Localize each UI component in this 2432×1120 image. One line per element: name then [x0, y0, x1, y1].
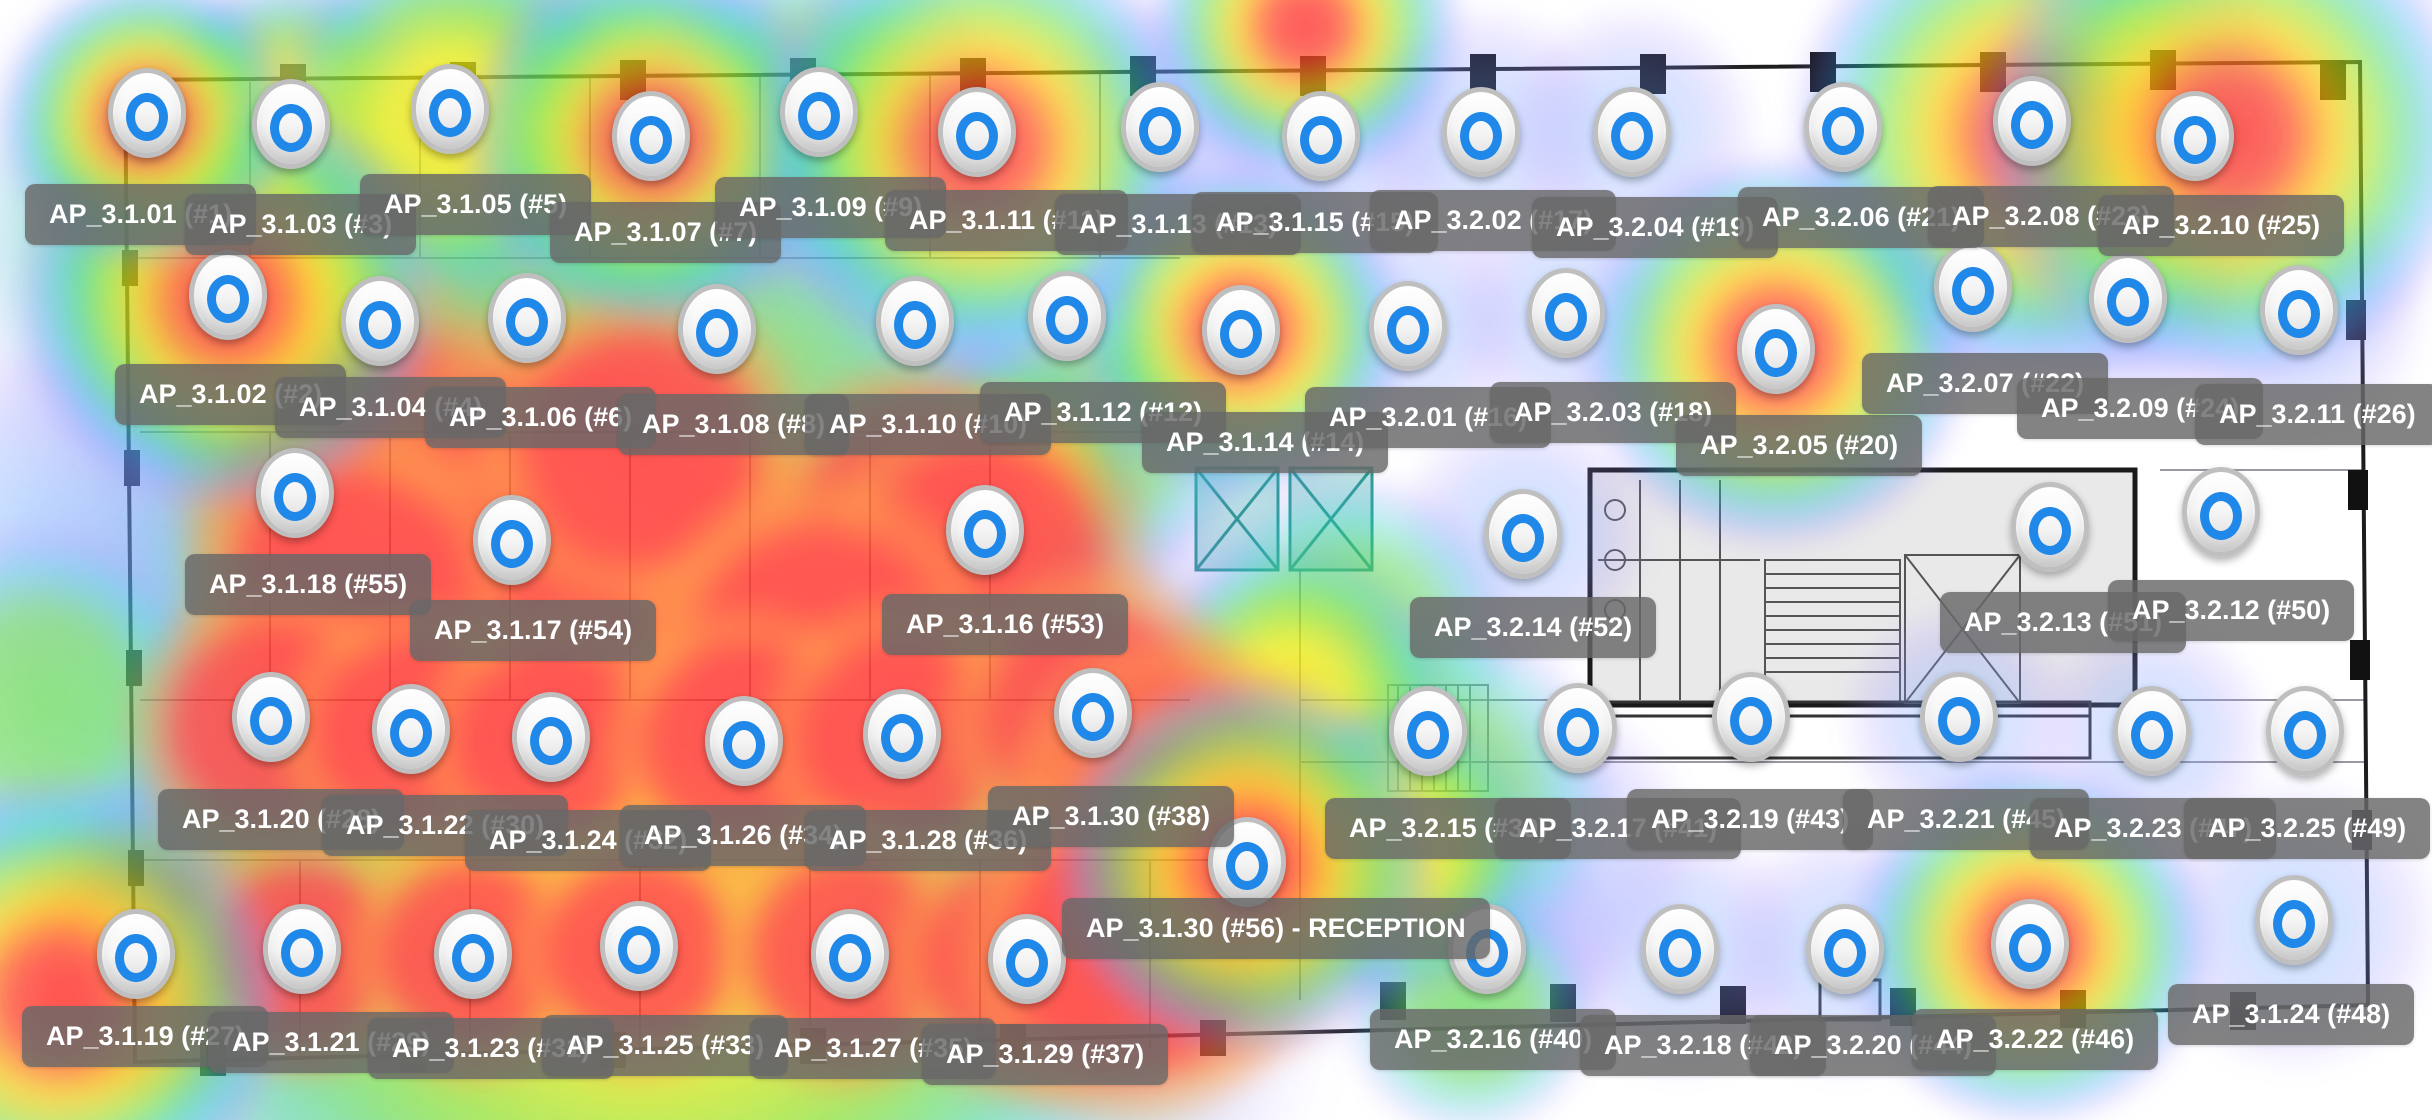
ap-ring-icon	[270, 104, 312, 152]
ap-ring-icon	[2273, 900, 2315, 948]
ap-ring-icon	[2131, 711, 2173, 759]
ap-ring-icon	[696, 309, 738, 357]
ap-icon[interactable]	[1442, 87, 1520, 177]
ap-label[interactable]: AP_3.1.30 (#56) - RECEPTION	[1062, 898, 1490, 959]
ap-ring-icon	[1300, 116, 1342, 164]
ap-ring-icon	[2278, 290, 2320, 338]
ap-icon[interactable]	[1121, 82, 1199, 172]
ap-icon[interactable]	[1389, 686, 1467, 776]
ap-ring-icon	[829, 934, 871, 982]
ap-icon[interactable]	[2260, 265, 2338, 355]
ap-icon[interactable]	[938, 87, 1016, 177]
ap-icon[interactable]	[2156, 91, 2234, 181]
ap-label[interactable]: AP_3.2.05 (#20)	[1676, 415, 1922, 476]
ap-icon[interactable]	[600, 901, 678, 991]
ap-ring-icon	[1938, 697, 1980, 745]
ap-icon[interactable]	[780, 67, 858, 157]
ap-ring-icon	[2009, 924, 2051, 972]
ap-icon[interactable]	[1202, 285, 1280, 375]
ap-label[interactable]: AP_3.1.17 (#54)	[410, 600, 656, 661]
ap-ring-icon	[359, 301, 401, 349]
ap-icon[interactable]	[863, 689, 941, 779]
ap-ring-icon	[1460, 112, 1502, 160]
ap-ring-icon	[1046, 296, 1088, 344]
ap-icon[interactable]	[1539, 683, 1617, 773]
ap-ring-icon	[207, 275, 249, 323]
ap-ring-icon	[630, 116, 672, 164]
ap-ring-icon	[618, 926, 660, 974]
ap-icon[interactable]	[1712, 672, 1790, 762]
ap-icon[interactable]	[488, 273, 566, 363]
ap-ring-icon	[1952, 267, 1994, 315]
ap-icon[interactable]	[2255, 875, 2333, 965]
ap-icon[interactable]	[2266, 686, 2344, 776]
ap-ring-icon	[1824, 929, 1866, 977]
ap-icon[interactable]	[612, 91, 690, 181]
ap-ring-icon	[798, 92, 840, 140]
ap-icon[interactable]	[946, 485, 1024, 575]
ap-icon[interactable]	[1991, 899, 2069, 989]
ap-ring-icon	[1226, 842, 1268, 890]
ap-icon[interactable]	[1282, 91, 1360, 181]
ap-icon[interactable]	[263, 904, 341, 994]
ap-icon[interactable]	[411, 64, 489, 154]
ap-ring-icon	[1387, 306, 1429, 354]
ap-ring-icon	[894, 301, 936, 349]
ap-icon[interactable]	[108, 68, 186, 158]
ap-icon[interactable]	[1737, 304, 1815, 394]
ap-ring-icon	[1755, 329, 1797, 377]
ap-ring-icon	[2284, 711, 2326, 759]
ap-icon[interactable]	[2089, 253, 2167, 343]
ap-label[interactable]: AP_3.2.22 (#46)	[1912, 1009, 2158, 1070]
ap-label[interactable]: AP_3.2.14 (#52)	[1410, 597, 1656, 658]
ap-ring-icon	[530, 717, 572, 765]
ap-ring-icon	[491, 520, 533, 568]
ap-icon[interactable]	[811, 909, 889, 999]
ap-ring-icon	[1545, 293, 1587, 341]
ap-ring-icon	[956, 112, 998, 160]
ap-label[interactable]: AP_3.1.29 (#37)	[922, 1024, 1168, 1085]
ap-icon[interactable]	[1054, 668, 1132, 758]
ap-ring-icon	[2011, 101, 2053, 149]
ap-label[interactable]: AP_3.1.30 (#38)	[988, 786, 1234, 847]
ap-ring-icon	[1659, 929, 1701, 977]
ap-ring-icon	[281, 929, 323, 977]
ap-ring-icon	[881, 714, 923, 762]
ap-icon[interactable]	[678, 284, 756, 374]
ap-ring-icon	[2174, 116, 2216, 164]
ap-icon[interactable]	[372, 684, 450, 774]
ap-ring-icon	[429, 89, 471, 137]
ap-ring-icon	[390, 709, 432, 757]
ap-icon[interactable]	[2011, 482, 2089, 572]
ap-icon[interactable]	[2182, 467, 2260, 557]
ap-ring-icon	[506, 298, 548, 346]
ap-icon[interactable]	[988, 914, 1066, 1004]
ap-ring-icon	[2029, 507, 2071, 555]
ap-ring-icon	[126, 93, 168, 141]
ap-icon[interactable]	[512, 692, 590, 782]
ap-ring-icon	[2200, 492, 2242, 540]
ap-icon[interactable]	[1369, 281, 1447, 371]
ap-icon[interactable]	[1028, 271, 1106, 361]
ap-ring-icon	[1730, 697, 1772, 745]
ap-ring-icon	[1557, 708, 1599, 756]
ap-icon[interactable]	[232, 672, 310, 762]
ap-icon[interactable]	[1527, 268, 1605, 358]
ap-icon[interactable]	[256, 448, 334, 538]
ap-icon[interactable]	[252, 79, 330, 169]
ap-ring-icon	[250, 697, 292, 745]
ap-label[interactable]: AP_3.2.12 (#50)	[2108, 580, 2354, 641]
ap-icon[interactable]	[1920, 672, 1998, 762]
ap-label[interactable]: AP_3.1.18 (#55)	[185, 554, 431, 615]
ap-icon[interactable]	[1934, 242, 2012, 332]
ap-ring-icon	[964, 510, 1006, 558]
ap-ring-icon	[452, 934, 494, 982]
ap-label[interactable]: AP_3.1.16 (#53)	[882, 594, 1128, 655]
ap-icon[interactable]	[705, 696, 783, 786]
ap-icon[interactable]	[473, 495, 551, 585]
ap-icon[interactable]	[1484, 489, 1562, 579]
ap-icon[interactable]	[876, 276, 954, 366]
ap-icon[interactable]	[2113, 686, 2191, 776]
ap-ring-icon	[2107, 278, 2149, 326]
ap-ring-icon	[1611, 112, 1653, 160]
heatmap-canvas: AP_3.1.01 (#1)AP_3.1.03 (#3)AP_3.1.05 (#…	[0, 0, 2432, 1120]
ap-ring-icon	[1006, 939, 1048, 987]
ap-icon[interactable]	[97, 909, 175, 999]
ap-label[interactable]: AP_3.2.19 (#43)	[1627, 789, 1873, 850]
ap-ring-icon	[1139, 107, 1181, 155]
ap-ring-icon	[1072, 693, 1114, 741]
ap-icon[interactable]	[434, 909, 512, 999]
ap-ring-icon	[115, 934, 157, 982]
ap-icon[interactable]	[1641, 904, 1719, 994]
ap-label[interactable]: AP_3.1.24 (#48)	[2168, 984, 2414, 1045]
ap-ring-icon	[1220, 310, 1262, 358]
ap-ring-icon	[723, 721, 765, 769]
ap-icon[interactable]	[341, 276, 419, 366]
ap-icon[interactable]	[189, 250, 267, 340]
ap-ring-icon	[1407, 711, 1449, 759]
ap-label[interactable]: AP_3.2.11 (#26)	[2195, 384, 2432, 445]
ap-ring-icon	[274, 473, 316, 521]
ap-label[interactable]: AP_3.2.10 (#25)	[2098, 195, 2344, 256]
ap-ring-icon	[1502, 514, 1544, 562]
ap-label[interactable]: AP_3.2.25 (#49)	[2184, 798, 2430, 859]
ap-icon[interactable]	[1993, 76, 2071, 166]
ap-icon[interactable]	[1806, 904, 1884, 994]
ap-icon[interactable]	[1804, 82, 1882, 172]
ap-ring-icon	[1822, 107, 1864, 155]
ap-icon[interactable]	[1593, 87, 1671, 177]
